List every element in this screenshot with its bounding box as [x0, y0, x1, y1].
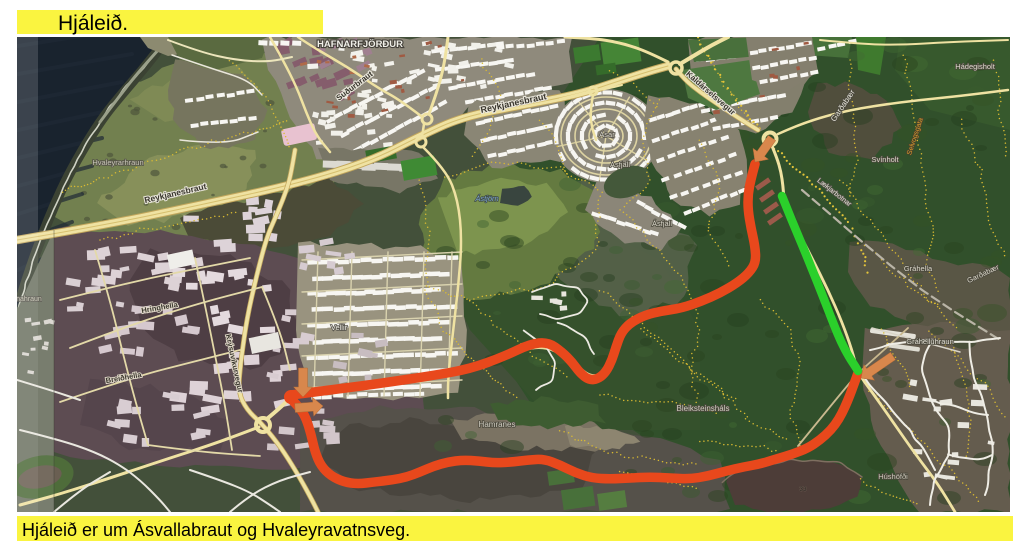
svg-text:Ásfjall: Ásfjall — [652, 219, 672, 228]
svg-text:Hádegisholt: Hádegisholt — [955, 62, 996, 71]
svg-text:Gráhella: Gráhella — [904, 264, 933, 273]
svg-text:Gráhelluhraun: Gráhelluhraun — [906, 337, 954, 346]
svg-text:33: 33 — [799, 486, 807, 493]
svg-text:HAFNARFJÖRÐUR: HAFNARFJÖRÐUR — [317, 39, 403, 50]
svg-text:Hvaleyrarhraun: Hvaleyrarhraun — [92, 158, 143, 167]
svg-text:Ásfjall: Ásfjall — [610, 160, 630, 169]
svg-text:Svínholt: Svínholt — [871, 155, 899, 164]
svg-text:Húshöfði: Húshöfði — [878, 472, 908, 481]
svg-text:Hamranes: Hamranes — [479, 420, 516, 429]
svg-text:Ásar: Ásar — [599, 130, 615, 139]
svg-text:Ástjörn: Ástjörn — [474, 194, 498, 203]
svg-text:Vellir: Vellir — [331, 323, 348, 332]
svg-text:Bleiksteinsháls: Bleiksteinsháls — [677, 404, 730, 413]
